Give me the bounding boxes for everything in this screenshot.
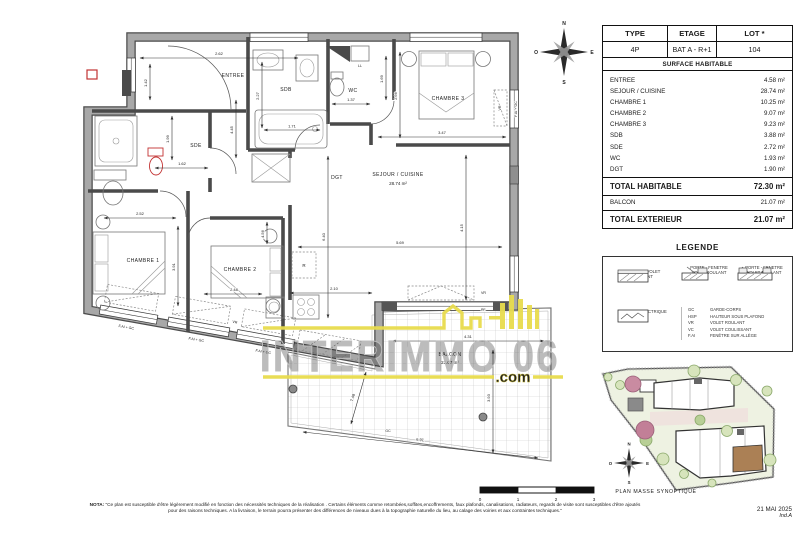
dim-balcon-bottom: 6.91 [416,437,425,443]
svg-text:3.47: 3.47 [438,130,447,135]
surface-table-title: SURFACE HABITABLE [603,58,792,71]
label-sejour: SEJOUR / CUISINE [372,172,423,178]
label-dgt: DGT [331,175,343,181]
abbr-meaning: VOLET ROULANT [710,320,745,327]
surface-label: CHAMBRE 2 [610,108,646,119]
room-labels: ENTREE SDB WC CHAMBRE 3 SEJOUR / CUISINE… [127,73,465,273]
svg-text:2.66: 2.66 [393,91,398,100]
svg-text:5.69: 5.69 [396,240,405,245]
abbr-row: VRVOLET ROULANT [688,320,798,327]
surface-row: SDB3.88 m² [610,130,785,141]
abbr-meaning: VOLET COULISSANT [710,327,752,334]
window-right-sejour [510,256,519,292]
dimensions: 2.62 1.42 2.27 1.71 1.37 1.69 2.66 3.47 … [104,51,506,318]
site-plan: N S E O PLAN MASSE SYNOPTIQUE [603,365,776,495]
label-ch1: CHAMBRE 1 [127,258,160,264]
value-type: 4P [603,42,667,57]
surface-label: SDE [610,142,623,153]
surface-label: CHAMBRE 1 [610,97,646,108]
surface-value: 10.25 m² [761,97,785,108]
site-unit-highlight [733,445,763,472]
abbr-meaning: FENÊTRE SUR ALLÈGE [710,333,757,340]
compass-e: E [646,461,649,466]
surface-value: 2.72 m² [764,142,785,153]
label-sdb: SDB [280,87,292,93]
svg-text:4.15: 4.15 [459,223,464,232]
legend-item-porte-fenetre-2: PORTE - FENETRE VOLET ROULANT [737,265,791,276]
surface-label: SEJOUR / CUISINE [610,86,665,97]
abbr: VR [688,320,710,327]
label-ch3: CHAMBRE 3 [432,96,465,102]
label-wc: WC [348,88,357,94]
legend-box: FENETRE-VOLET ROULANT PORTE - FENETRE VO… [602,256,793,352]
fai-gc-tag: F.AI + GC [188,336,205,343]
surface-label: DGT [610,164,623,175]
double-door-window-shutter-icon [737,265,773,281]
sdb-washbasin [253,50,318,81]
surface-value: 28.74 m² [761,86,785,97]
svg-text:1.99: 1.99 [165,134,170,143]
legend-item-placard: PLACARD ELECTRIQUE [617,309,669,314]
surface-row: WC1.93 m² [610,153,785,164]
surface-row: CHAMBRE 29.07 m² [610,108,785,119]
surface-value: 3.88 m² [764,130,785,141]
lot-table-values: 4P BAT A - R+1 104 [603,42,792,58]
svg-text:1.42: 1.42 [143,78,148,87]
label-sde: SDE [190,143,202,149]
compass-o: O [534,50,538,56]
bathtub [255,110,327,148]
total-habitable-label: TOTAL HABITABLE [610,182,682,191]
label-ch2: CHAMBRE 2 [224,267,257,273]
compass-s: S [562,80,566,86]
plan-sheet: 4.31 3.93 6.91 7.48 BALCON 21.07 m² GC [0,0,799,533]
svg-text:6.40: 6.40 [321,232,326,241]
surface-row: ENTREE4.58 m² [610,75,785,86]
entry-closet [252,154,290,182]
plan-index: Ind.A [716,513,792,520]
total-habitable-value: 72.30 m² [754,182,785,191]
lot-info-panel: TYPE ETAGE LOT * 4P BAT A - R+1 104 SURF… [602,25,793,229]
svg-text:2.52: 2.52 [136,211,145,216]
vr-tag: VR [232,320,238,325]
surface-label: ENTREE [610,75,635,86]
surface-value: 9.07 m² [764,108,785,119]
electric-closet-icon [617,309,649,323]
surface-row: CHAMBRE 39.23 m² [610,119,785,130]
sde-wc-red [148,148,163,175]
compass-s: S [628,480,631,485]
lot-table-header: TYPE ETAGE LOT * [603,26,792,42]
window-top-ch3 [410,33,482,42]
abbr-row: F.AIFENÊTRE SUR ALLÈGE [688,333,798,340]
site-building-b [676,426,766,478]
surface-value: 4.58 m² [764,75,785,86]
red-marker [87,70,97,79]
surface-row: DGT1.90 m² [610,164,785,175]
abbr: F.AI [688,333,710,340]
legend-title: LEGENDE [602,243,793,252]
sde-washbasin [94,170,126,205]
abbr: GC [688,307,710,314]
svg-text:2.48: 2.48 [230,287,239,292]
total-exterieur-value: 21.07 m² [754,215,785,224]
svg-text:2.10: 2.10 [330,286,339,291]
vr-tag: VR [498,105,502,110]
value-lot: 104 [717,42,792,57]
date-block: 21 MAI 2025 Ind.A [716,506,792,520]
window-shutter-icon [617,269,649,283]
total-exterieur-row: TOTAL EXTERIEUR 21.07 m² [603,210,792,228]
door-window-shutter-icon [681,265,709,281]
surface-value: 1.90 m² [764,164,785,175]
fai-gc-tag: F.AI + GC [118,324,135,331]
pf-tag: PF [481,308,486,312]
compass-o: O [609,461,613,466]
col-lot: LOT * [717,26,792,41]
compass-n: N [627,442,630,447]
svg-text:2.27: 2.27 [255,91,260,100]
balcony-drain [289,385,297,393]
total-habitable-row: TOTAL HABITABLE 72.30 m² [603,177,792,195]
surface-label: SDB [610,130,623,141]
balcon-label: BALCON [610,199,635,206]
svg-text:1.62: 1.62 [178,161,187,166]
label-entree: ENTREE [222,73,245,79]
balcony-drain [479,413,487,421]
balcony-door-pf [382,302,508,311]
abbr-meaning: HAUTEUR SOUS PLAFOND [710,314,764,321]
abbr: VC [688,327,710,334]
svg-text:1.71: 1.71 [288,124,297,129]
value-etage: BAT A - R+1 [667,42,717,57]
shower [95,116,137,166]
bed-ch3 [402,51,491,119]
surface-value: 9.23 m² [764,119,785,130]
surface-rows: ENTREE4.58 m² SEJOUR / CUISINE28.74 m² C… [603,71,792,177]
surface-label: WC [610,153,620,164]
svg-text:3.91: 3.91 [171,262,176,271]
partitions [88,37,510,344]
duct-box [122,70,131,96]
nota-body: "Ce plan est susceptible d'être légèreme… [105,502,640,513]
dim-balcon-height: 3.93 [486,393,491,402]
label-sejour-area: 28.74 m² [389,181,407,186]
abbr-row: HSPHAUTEUR SOUS PLAFOND [688,314,798,321]
legend-item-fenetre: FENETRE-VOLET ROULANT [617,269,669,280]
lot-table: TYPE ETAGE LOT * 4P BAT A - R+1 104 SURF… [602,25,793,229]
site-plan-caption: PLAN MASSE SYNOPTIQUE [615,489,696,495]
watermark-suffix: .com [495,369,530,386]
plan-date: 21 MAI 2025 [716,506,792,513]
surface-row: SEJOUR / CUISINE28.74 m² [610,86,785,97]
compass-n: N [562,21,566,27]
surface-row: CHAMBRE 110.25 m² [610,97,785,108]
svg-text:1.37: 1.37 [347,97,356,102]
balcon-row: BALCON 21.07 m² [603,195,792,210]
compass-rose: N S E O [534,21,594,86]
nota-label: NOTA: [90,502,105,507]
abbr-row: GCGARDE-CORPS [688,307,798,314]
abbr-row: VCVOLET COULISSANT [688,327,798,334]
fridge-tag: R [302,263,306,268]
wall-niche [510,166,519,184]
gc-tag: GC [385,429,391,433]
fai-gc-tag: F.AI + GC [514,101,518,117]
scale-bar: 0 1 2 3 [479,487,596,502]
abbr: HSP [688,314,710,321]
legend-abbreviations: GCGARDE-CORPS HSPHAUTEUR SOUS PLAFOND VR… [681,307,798,340]
site-compass: N S E O [609,442,649,485]
col-etage: ETAGE [667,26,717,41]
washing-machine: LL [351,46,369,68]
total-exterieur-label: TOTAL EXTERIEUR [610,215,682,224]
compass-e: E [590,50,594,56]
svg-text:4.45: 4.45 [229,125,234,134]
svg-text:4.56: 4.56 [260,229,265,238]
col-type: TYPE [603,26,667,41]
surface-value: 1.93 m² [764,153,785,164]
vr-tag: VR [481,291,486,295]
svg-text:1.69: 1.69 [379,74,384,83]
surface-row: SDE2.72 m² [610,142,785,153]
window-diag-2: F.AI + GC VR [165,296,240,348]
ll-tag: LL [358,64,362,68]
balcon-value: 21.07 m² [761,199,785,206]
abbr-meaning: GARDE-CORPS [710,307,741,314]
nota-text: NOTA: "Ce plan est susceptible d'être lé… [85,502,645,513]
legend-panel: LEGENDE FENETRE-VOLET ROULANT PORTE - FE… [602,243,793,352]
surface-label: CHAMBRE 3 [610,119,646,130]
svg-text:2.62: 2.62 [215,51,224,56]
window-top-sdb [250,33,308,42]
legend-item-porte-fenetre-1: PORTE - FENETRE VOLET ROULANT [681,265,737,276]
